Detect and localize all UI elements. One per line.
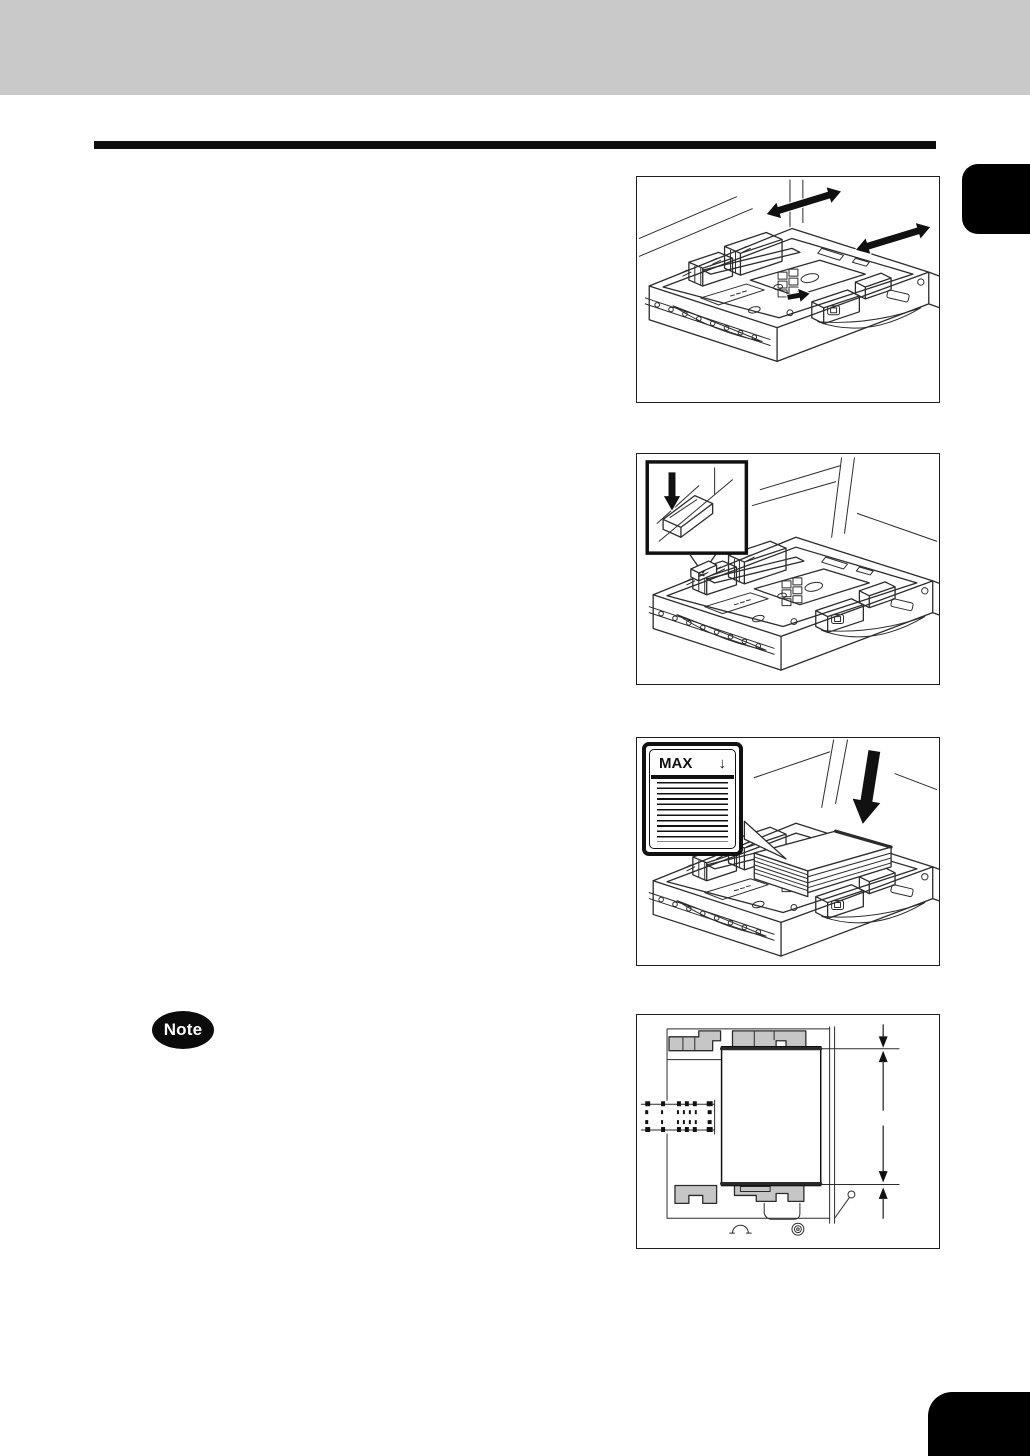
tray-guides-illustration (637, 177, 939, 402)
down-arrow-glyph: ↓ (719, 755, 727, 772)
machine-body-lines (754, 740, 936, 807)
paper-sheet (722, 1047, 821, 1186)
figure-paper-position-top-view (636, 1014, 940, 1249)
size-scale-marks (641, 1100, 714, 1134)
clearance-dimension-arrows (822, 1025, 899, 1218)
note-label: Note (164, 1020, 203, 1040)
load-arrow-icon (848, 748, 889, 827)
tray-lever-illustration (637, 454, 939, 684)
resize-arrow-icon (763, 183, 844, 223)
figure-load-paper: MAX ↓ (636, 737, 940, 966)
max-line (651, 775, 734, 779)
note-badge: Note (152, 1011, 214, 1049)
page-corner-mark (928, 1392, 1030, 1456)
max-label: MAX (659, 755, 692, 772)
machine-body-lines (752, 458, 936, 541)
section-rule (94, 141, 936, 149)
chapter-tab (962, 164, 1030, 234)
figure-adjust-side-guides (636, 176, 940, 403)
top-view-illustration (637, 1015, 939, 1248)
resize-arrow-icon (853, 218, 934, 258)
max-level-card: MAX ↓ (649, 749, 736, 849)
header-bar (0, 0, 1030, 95)
figure-press-plate-lever (636, 453, 940, 685)
slide-arrow-icon (786, 286, 812, 305)
max-level-inset: MAX ↓ (642, 742, 743, 856)
paper-stack-lines (657, 782, 728, 843)
inset-detail-box (647, 462, 746, 553)
tray-bottom-details (730, 1223, 804, 1235)
